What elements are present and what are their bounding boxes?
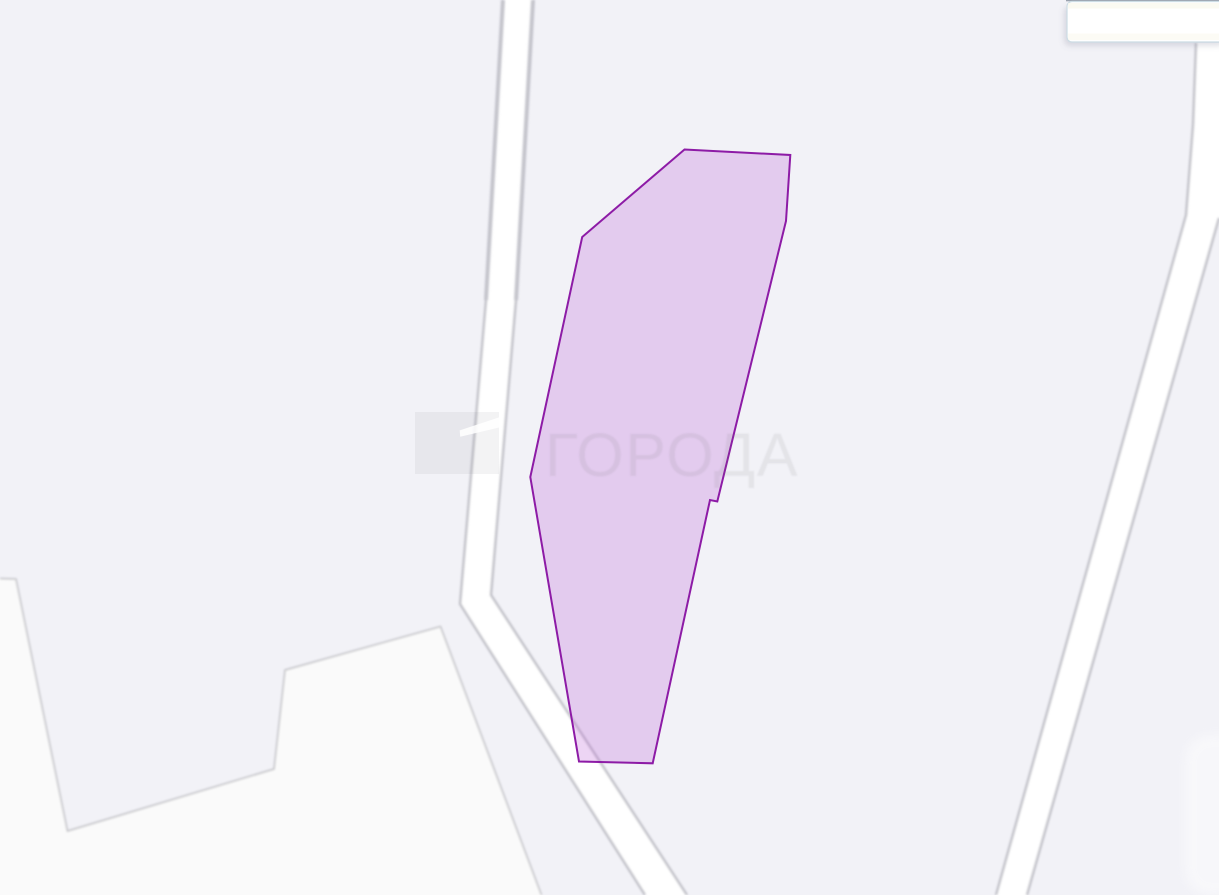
svg-text:ГОРОДА: ГОРОДА <box>545 421 799 489</box>
